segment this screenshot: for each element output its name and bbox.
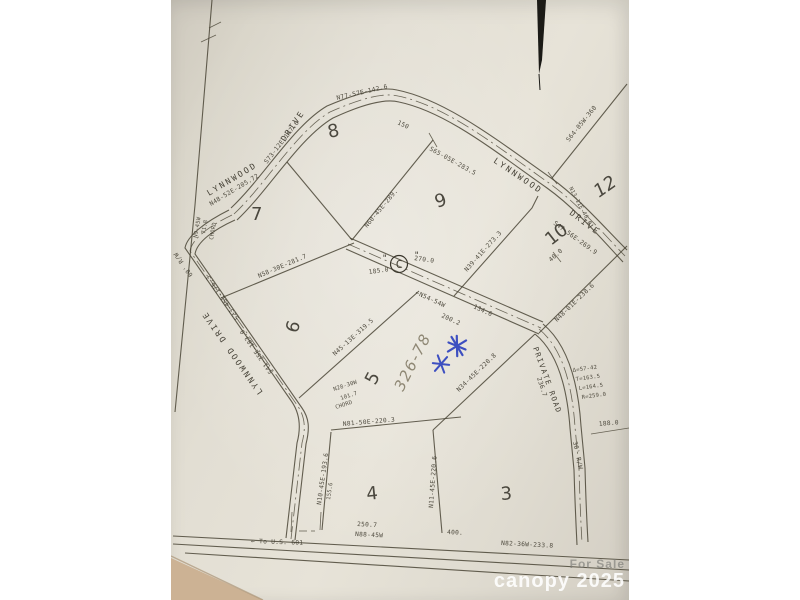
pen-mark [537,0,546,74]
bearing-label: N39-41E-273.3 [463,230,503,274]
lot-number-7: 7 [251,204,262,225]
blue-star-annotation [432,354,450,374]
bearing-label: N88-45W [355,531,384,539]
curve-point-quote-left: " [382,254,387,264]
watermark: For Sale canopy 2025 [494,558,625,592]
curve-data-label: T=163.5 [575,374,600,383]
bearing-label: N34-45E-220.8 [456,352,499,393]
bearing-label: 250.7 [357,521,377,529]
lot-number-6: 6 [282,318,306,335]
bearing-label: N77-57E-142.6 [336,83,389,102]
screenshot-page: C " " LYNNWOOD DRIVE LYNNWOOD DRIVE LYNN… [0,0,800,600]
label-to-us-601: ← To U.S. 601 [251,538,304,547]
bearing-label: 270.0 [414,255,435,265]
bearing-label: 185.0 [368,266,389,276]
lot-number-12: 12 [590,172,621,202]
lot-number-8: 8 [326,120,342,143]
pen-mark-tip [539,74,540,90]
bearing-label: S64-05W-360 [565,104,598,143]
plat-map-svg: C " " LYNNWOOD DRIVE LYNNWOOD DRIVE LYNN… [171,0,629,600]
bearing-label: 40.0 [548,248,565,264]
lot-number-9: 9 [432,189,449,213]
lot-number-4: 4 [365,483,379,505]
watermark-brand: canopy 2025 [494,571,625,592]
plat-map-photo: C " " LYNNWOOD DRIVE LYNNWOOD DRIVE LYNN… [171,0,629,600]
bearing-label: 155.6 [326,482,334,500]
bearing-label: S65-05E-283.5 [428,146,477,177]
bearing-label: 200.2 [440,312,461,327]
bearing-label: N58-30E-281.7 [257,253,308,280]
pencil-note: 326-78 [391,330,435,394]
bearing-label: CHORD [335,400,354,411]
bearing-label: N48-01E-238.6 [554,282,597,323]
bearing-label: CHORD [209,222,218,240]
bearing-label: 188.0 [599,419,620,428]
bearing-label: 150 [396,119,410,130]
lot-number-5: 5 [361,368,385,388]
bearing-label: 400. [447,529,463,537]
curve-data-label: R=259.0 [581,392,606,401]
bearing-label: ←N54-54W [414,289,446,309]
bearing-label: N60-45E-289. [363,188,399,230]
bearing-label: N45-13E-319.5 [332,317,376,357]
curve-data-label: L=164.5 [578,383,603,392]
curve-point-label: C [396,258,403,271]
blue-star-annotation [446,335,467,358]
label-60ft-right-of-way: 60' R/W [173,251,195,278]
bearing-label: 71.8 [201,219,209,234]
bearing-label: N82-36W-233.8 [501,540,554,550]
bearing-label: 134.6 [472,303,493,318]
curve-data-label: Δ=57-42 [572,365,597,374]
lot-number-3: 3 [500,483,513,505]
